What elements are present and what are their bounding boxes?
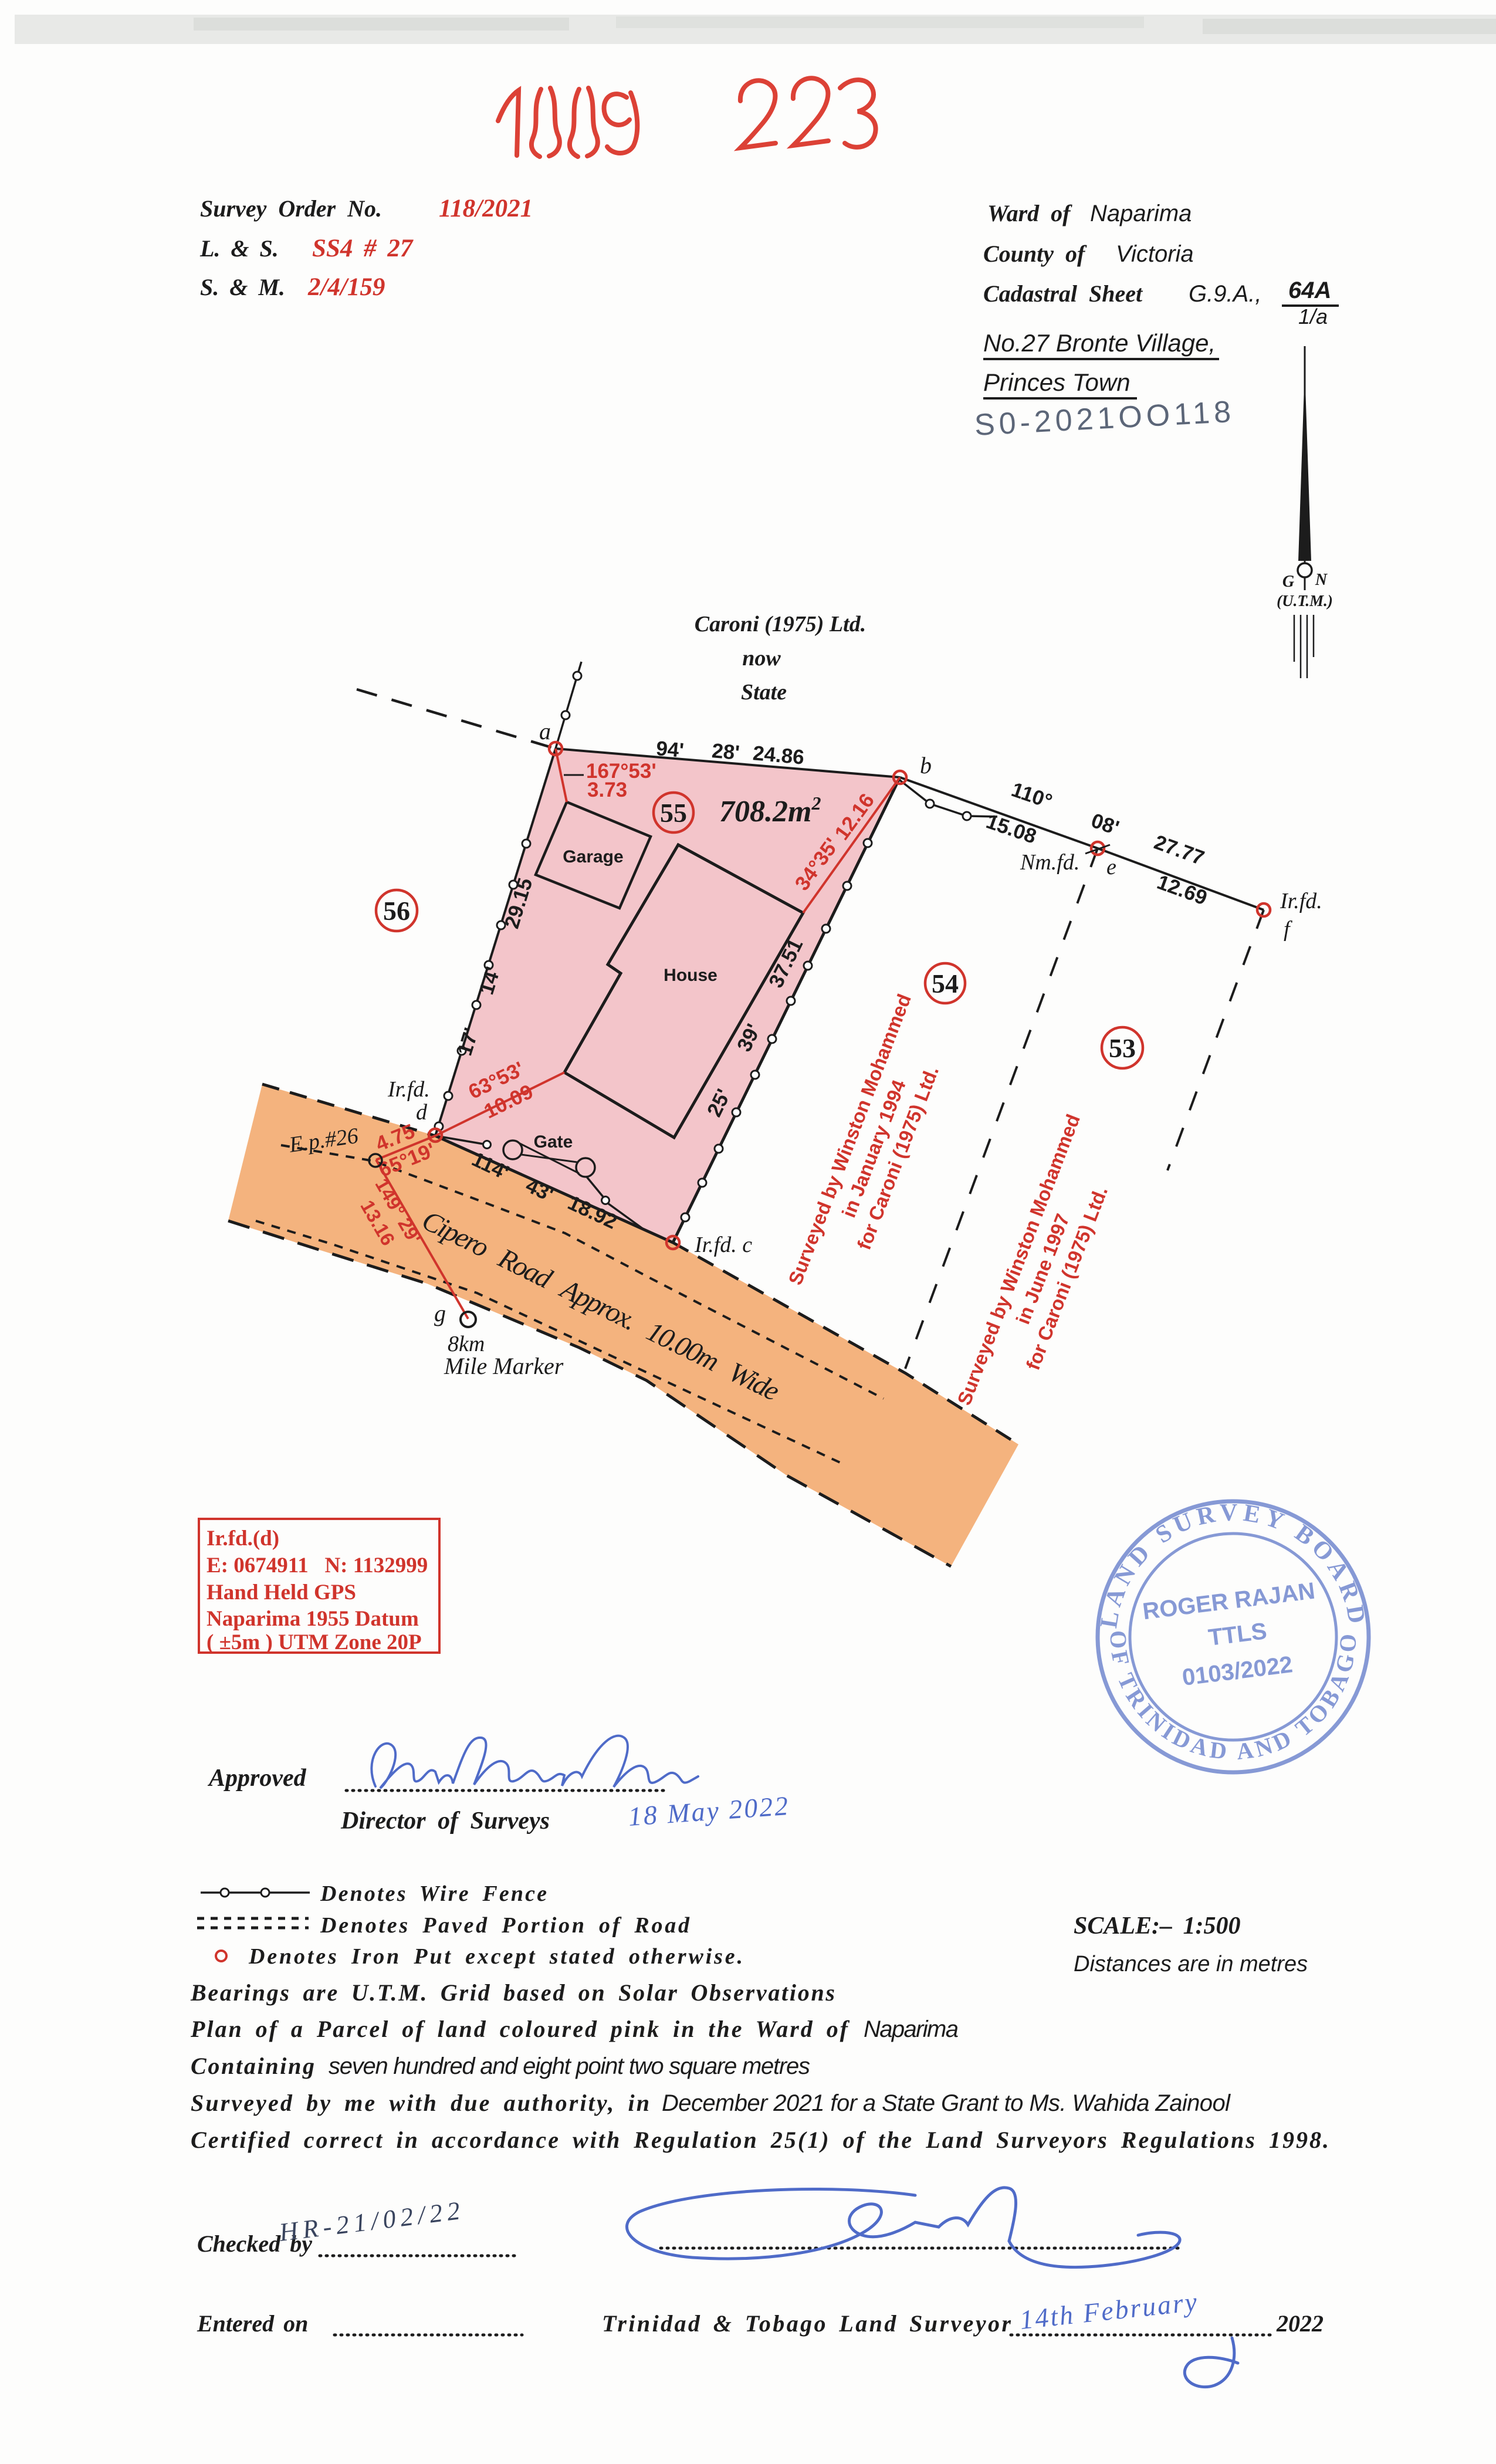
svg-text:118/2021: 118/2021 bbox=[439, 195, 533, 222]
svg-text:b: b bbox=[920, 752, 932, 779]
svg-text:Certified correct in accord: Certified correct in accordance with Reg… bbox=[191, 2127, 1329, 2153]
svg-text:2/4/159: 2/4/159 bbox=[307, 273, 385, 301]
svg-text:( ±5m ) UTM Zone 20P: ( ±5m ) UTM Zone 20P bbox=[207, 1630, 422, 1654]
svg-text:Ir.fd.: Ir.fd. bbox=[387, 1077, 430, 1102]
svg-text:d: d bbox=[416, 1100, 428, 1125]
svg-text:Ward of: Ward of bbox=[987, 200, 1072, 226]
svg-text:E: 0674911 N: 1132999: E: 0674911 N: 1132999 bbox=[207, 1553, 428, 1578]
svg-text:24.86: 24.86 bbox=[752, 742, 805, 769]
svg-text:Victoria: Victoria bbox=[1116, 241, 1194, 267]
svg-text:Gate: Gate bbox=[534, 1132, 573, 1152]
svg-text:Denotes Iron Put except st: Denotes Iron Put except stated otherwise… bbox=[248, 1944, 743, 1969]
svg-text:Approved: Approved bbox=[207, 1765, 307, 1792]
svg-text:House: House bbox=[664, 966, 717, 985]
svg-text:Princes Town: Princes Town bbox=[983, 368, 1131, 396]
svg-text:L. & S.: L. & S. bbox=[199, 235, 279, 262]
svg-text:N: N bbox=[1315, 571, 1328, 589]
svg-text:Bearings are U.T.M. Grid b: Bearings are U.T.M. Grid based on Solar … bbox=[190, 1979, 835, 2006]
svg-text:Garage: Garage bbox=[563, 847, 623, 867]
svg-text:Ir.fd.: Ir.fd. bbox=[1280, 889, 1322, 913]
svg-text:Naparima: Naparima bbox=[864, 2016, 959, 2042]
svg-text:Nm.fd.: Nm.fd. bbox=[1020, 850, 1079, 875]
svg-text:No.27 Bronte Village,: No.27 Bronte Village, bbox=[983, 329, 1216, 357]
svg-text:Denotes Paved Portion of R: Denotes Paved Portion of Road bbox=[320, 1913, 690, 1938]
svg-text:Survey Order No.: Survey Order No. bbox=[200, 195, 382, 222]
svg-text:SCALE:– 1:500: SCALE:– 1:500 bbox=[1074, 1913, 1241, 1940]
svg-text:Naparima 1955 Datum: Naparima 1955 Datum bbox=[207, 1607, 419, 1631]
svg-text:S. & M.: S. & M. bbox=[200, 274, 285, 300]
svg-text:County of: County of bbox=[983, 241, 1087, 267]
svg-text:56: 56 bbox=[383, 896, 410, 926]
svg-text:a: a bbox=[539, 718, 551, 744]
svg-text:Denotes Wire Fence: Denotes Wire Fence bbox=[320, 1881, 547, 1906]
svg-text:g: g bbox=[434, 1300, 446, 1326]
svg-text:Ir.fd. c: Ir.fd. c bbox=[694, 1233, 752, 1257]
svg-text:SS4 # 27: SS4 # 27 bbox=[312, 235, 414, 262]
svg-text:now: now bbox=[742, 646, 781, 671]
svg-text:Mile Marker: Mile Marker bbox=[444, 1353, 564, 1379]
svg-text:1/a: 1/a bbox=[1298, 304, 1328, 329]
svg-text:54: 54 bbox=[932, 969, 959, 999]
svg-text:G.9.A.,: G.9.A., bbox=[1189, 281, 1262, 307]
svg-text:53: 53 bbox=[1109, 1033, 1136, 1063]
svg-text:708.2m2: 708.2m2 bbox=[719, 793, 821, 828]
svg-text:Cadastral Sheet: Cadastral Sheet bbox=[983, 280, 1143, 307]
svg-text:e: e bbox=[1106, 855, 1116, 879]
svg-text:64A: 64A bbox=[1288, 277, 1331, 303]
svg-text:28': 28' bbox=[711, 739, 740, 764]
svg-text:G: G bbox=[1282, 573, 1294, 591]
svg-text:2022: 2022 bbox=[1276, 2310, 1324, 2337]
svg-text:3.73: 3.73 bbox=[587, 779, 627, 801]
svg-text:Containing: Containing bbox=[191, 2053, 314, 2079]
svg-text:Surveyed by me with due a: Surveyed by me with due authority, in bbox=[191, 2090, 649, 2116]
svg-text:State: State bbox=[741, 680, 787, 705]
svg-text:55: 55 bbox=[660, 798, 687, 828]
svg-text:(U.T.M.): (U.T.M.) bbox=[1277, 592, 1333, 610]
svg-text:Director of Surveys: Director of Surveys bbox=[340, 1808, 550, 1835]
svg-text:94': 94' bbox=[655, 737, 685, 762]
svg-text:seven hundred and eight point: seven hundred and eight point two square… bbox=[329, 2053, 810, 2079]
svg-text:Entered on: Entered on bbox=[197, 2310, 308, 2337]
svg-text:Hand Held GPS: Hand Held GPS bbox=[207, 1580, 356, 1605]
svg-text:Plan of a Parcel of land: Plan of a Parcel of land coloured pink i… bbox=[190, 2016, 850, 2042]
svg-text:Distances are in metres: Distances are in metres bbox=[1074, 1952, 1308, 1976]
svg-text:Caroni (1975) Ltd.: Caroni (1975) Ltd. bbox=[695, 612, 866, 637]
svg-text:Ir.fd.(d): Ir.fd.(d) bbox=[207, 1527, 279, 1551]
svg-text:December 2021 for a State Gran: December 2021 for a State Grant to Ms. W… bbox=[662, 2090, 1231, 2116]
svg-text:Naparima: Naparima bbox=[1090, 201, 1192, 226]
